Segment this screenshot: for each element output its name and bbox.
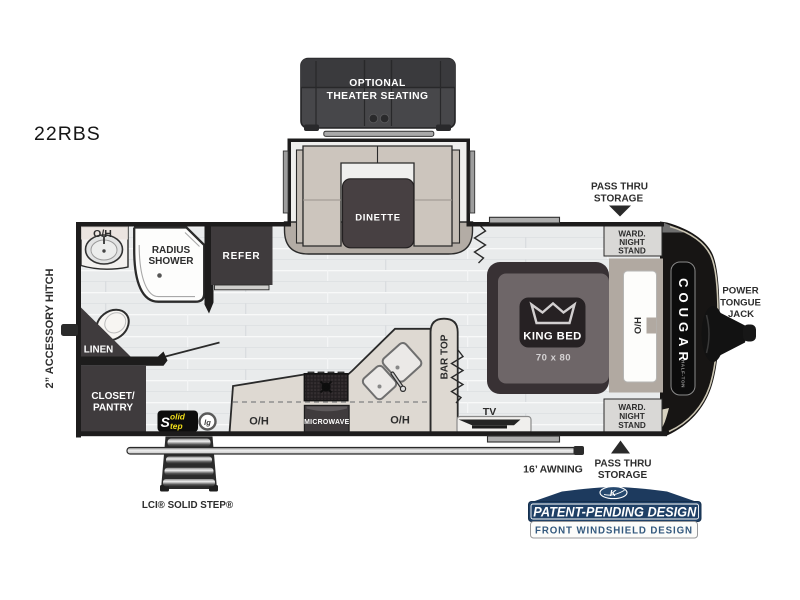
svg-text:TV: TV <box>483 406 496 418</box>
svg-text:BAR TOP: BAR TOP <box>439 334 450 379</box>
svg-text:PANTRY: PANTRY <box>93 403 133 414</box>
svg-text:O/H: O/H <box>93 228 112 240</box>
svg-text:2” ACCESSORY HITCH: 2” ACCESSORY HITCH <box>44 268 56 388</box>
svg-text:O/H: O/H <box>390 415 410 427</box>
svg-text:COUGAR: COUGAR <box>676 278 691 366</box>
svg-text:16’ AWNING: 16’ AWNING <box>523 464 583 476</box>
svg-text:O/H: O/H <box>633 317 644 334</box>
svg-text:WARD.: WARD. <box>618 229 645 238</box>
svg-text:STORAGE: STORAGE <box>598 470 648 481</box>
svg-text:HALF-TON: HALF-TON <box>681 360 686 388</box>
svg-text:MICROWAVE: MICROWAVE <box>304 419 350 426</box>
svg-text:NIGHT: NIGHT <box>619 238 644 247</box>
svg-text:lg: lg <box>204 418 211 427</box>
svg-text:O/H: O/H <box>249 416 269 428</box>
svg-text:FRONT WINDSHIELD DESIGN: FRONT WINDSHIELD DESIGN <box>535 526 693 537</box>
svg-text:NIGHT: NIGHT <box>619 412 644 421</box>
svg-text:CLOSET/: CLOSET/ <box>91 391 135 402</box>
svg-text:olid: olid <box>170 412 186 422</box>
svg-text:70 x 80: 70 x 80 <box>536 353 571 364</box>
svg-text:PASS THRU: PASS THRU <box>594 459 651 470</box>
svg-text:KING BED: KING BED <box>523 331 581 343</box>
svg-text:S: S <box>161 414 171 430</box>
svg-text:POWER: POWER <box>722 286 758 297</box>
svg-text:WARD.: WARD. <box>618 403 645 412</box>
svg-text:STAND: STAND <box>618 421 646 430</box>
svg-text:STAND: STAND <box>618 247 646 256</box>
svg-text:PASS THRU: PASS THRU <box>591 182 648 193</box>
svg-text:22RBS: 22RBS <box>34 123 101 145</box>
svg-text:LCI® SOLID STEP®: LCI® SOLID STEP® <box>142 500 234 511</box>
svg-text:REFER: REFER <box>223 251 261 262</box>
svg-text:STORAGE: STORAGE <box>594 194 644 205</box>
svg-text:TONGUE: TONGUE <box>720 298 761 309</box>
svg-text:OPTIONAL: OPTIONAL <box>349 78 405 89</box>
svg-text:DINETTE: DINETTE <box>355 213 401 224</box>
svg-text:RADIUS: RADIUS <box>152 245 191 256</box>
svg-text:tep: tep <box>170 421 183 431</box>
svg-text:PATENT-PENDING DESIGN: PATENT-PENDING DESIGN <box>533 505 696 520</box>
svg-text:JACK: JACK <box>728 309 754 320</box>
svg-text:K: K <box>610 488 617 498</box>
svg-text:LINEN: LINEN <box>84 344 113 355</box>
svg-text:SHOWER: SHOWER <box>149 256 195 267</box>
svg-text:THEATER SEATING: THEATER SEATING <box>327 91 429 102</box>
